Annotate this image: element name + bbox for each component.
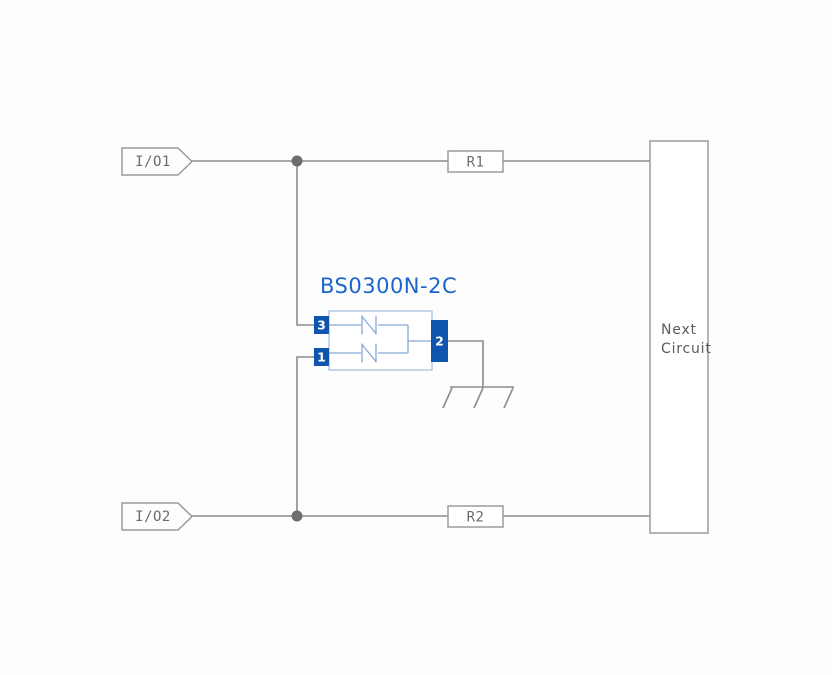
io2-port-flag: I/O2 — [122, 503, 192, 530]
io1-label: I/O1 — [135, 154, 171, 170]
tvs-component: BS0300N-2C 3 — [314, 274, 457, 370]
pin-3: 3 — [314, 316, 329, 334]
pin-2-number: 2 — [435, 334, 444, 349]
ground-hatch-right — [504, 388, 513, 408]
pin-1-number: 1 — [317, 350, 326, 365]
r1-label: R1 — [467, 155, 485, 171]
pin-2: 2 — [431, 320, 448, 362]
next-circuit-block: Next Circuit — [650, 141, 712, 533]
io1-port-flag: I/O1 — [122, 148, 192, 175]
schematic-page: I/O1 I/O2 R1 R2 Next Circuit BS0300N-2C — [0, 0, 832, 675]
wire-pin2-to-ground — [448, 341, 483, 387]
next-circuit-label-line2: Circuit — [661, 341, 712, 357]
junction-dot-bottom — [292, 511, 303, 522]
junction-dot-top — [292, 156, 303, 167]
pin-1: 1 — [314, 348, 329, 366]
circuit-diagram-svg: I/O1 I/O2 R1 R2 Next Circuit BS0300N-2C — [0, 0, 832, 675]
pin-3-number: 3 — [317, 318, 326, 333]
r2-label: R2 — [467, 510, 485, 526]
wire-pin1-to-junction — [297, 357, 314, 516]
component-title: BS0300N-2C — [320, 274, 457, 298]
resistor-r2: R2 — [448, 506, 503, 527]
ground-hatch-left — [443, 388, 452, 408]
next-circuit-label-line1: Next — [661, 322, 697, 338]
wire-junction-to-pin3 — [297, 161, 314, 325]
resistor-r1: R1 — [448, 151, 503, 172]
ground-icon — [443, 387, 514, 408]
ground-hatch-middle — [474, 388, 483, 408]
io2-label: I/O2 — [135, 509, 171, 525]
